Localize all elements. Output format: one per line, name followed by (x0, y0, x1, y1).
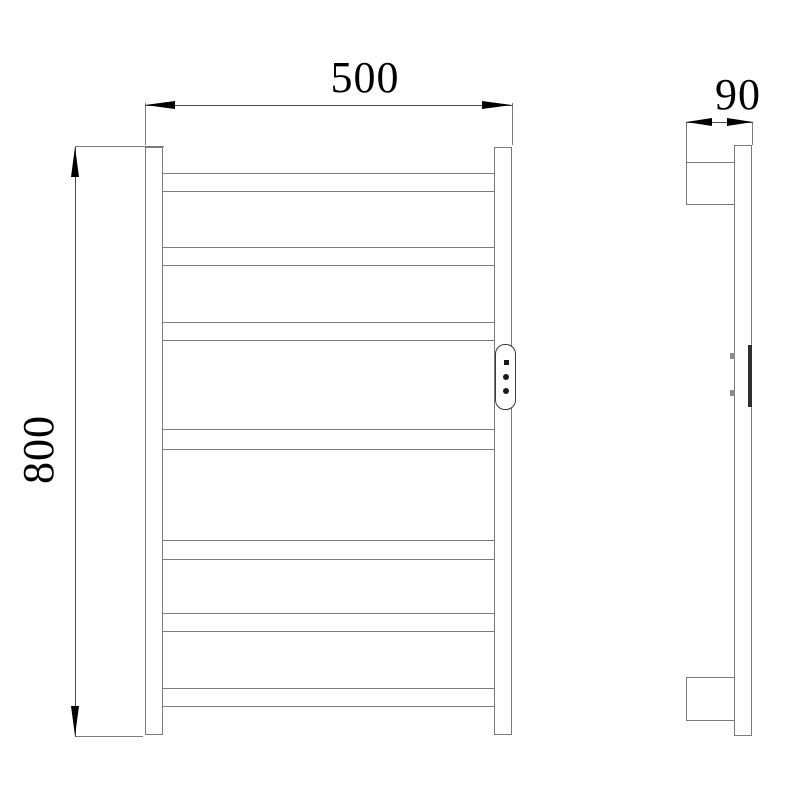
width-dimension-line (145, 105, 513, 106)
rung-6 (163, 613, 494, 632)
arrow-up-icon (71, 147, 79, 177)
control-button-icon (503, 374, 509, 380)
depth-dimension-label: 90 (706, 73, 770, 117)
front-right-rail (494, 147, 512, 735)
control-panel (495, 344, 516, 410)
arrow-right-icon (482, 101, 512, 109)
power-indicator-icon (504, 360, 509, 365)
height-extension-line-bottom (75, 736, 143, 737)
wall-bracket-bottom (686, 677, 735, 721)
width-extension-line-right (512, 103, 513, 145)
arrow-left-icon (145, 101, 175, 109)
wall-bracket-top (686, 162, 735, 205)
rung-3 (163, 322, 494, 341)
arrow-left-icon (686, 118, 712, 126)
width-extension-line-left (145, 103, 146, 145)
rung-4 (163, 429, 494, 450)
rung-2 (163, 247, 494, 266)
depth-extension-line-left (686, 122, 687, 163)
rung-7 (163, 688, 494, 707)
control-panel-side-edge (748, 345, 752, 407)
arrow-right-icon (727, 118, 753, 126)
mount-nub-bottom (730, 390, 735, 396)
rung-1 (163, 173, 494, 192)
rung-5 (163, 540, 494, 560)
mount-nub-top (730, 353, 735, 359)
width-dimension-label: 500 (325, 56, 405, 100)
technical-drawing: 500 800 90 (0, 0, 800, 800)
height-dimension-label: 800 (17, 420, 61, 484)
side-rail (734, 145, 752, 736)
control-button-icon (503, 388, 509, 394)
front-left-rail (145, 147, 163, 735)
height-dimension-line (75, 147, 76, 737)
arrow-down-icon (71, 706, 79, 736)
